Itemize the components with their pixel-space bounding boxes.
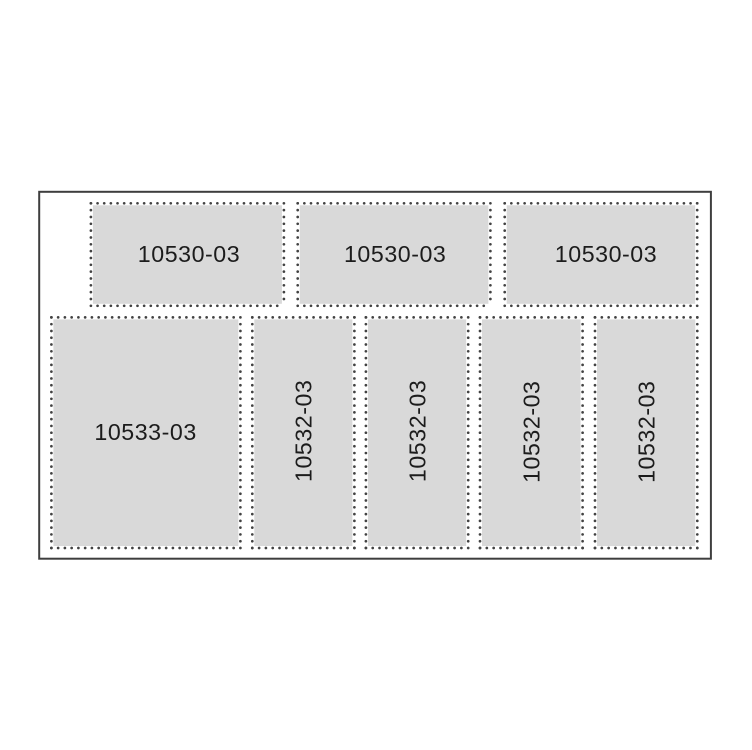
svg-text:10532-03: 10532-03 (404, 380, 430, 482)
svg-text:10532-03: 10532-03 (633, 380, 659, 482)
svg-text:10530-03: 10530-03 (138, 241, 240, 267)
svg-text:10533-03: 10533-03 (94, 419, 196, 445)
svg-text:10532-03: 10532-03 (519, 380, 545, 482)
svg-text:10530-03: 10530-03 (555, 241, 657, 267)
svg-text:10530-03: 10530-03 (344, 241, 446, 267)
svg-text:10532-03: 10532-03 (291, 380, 317, 482)
